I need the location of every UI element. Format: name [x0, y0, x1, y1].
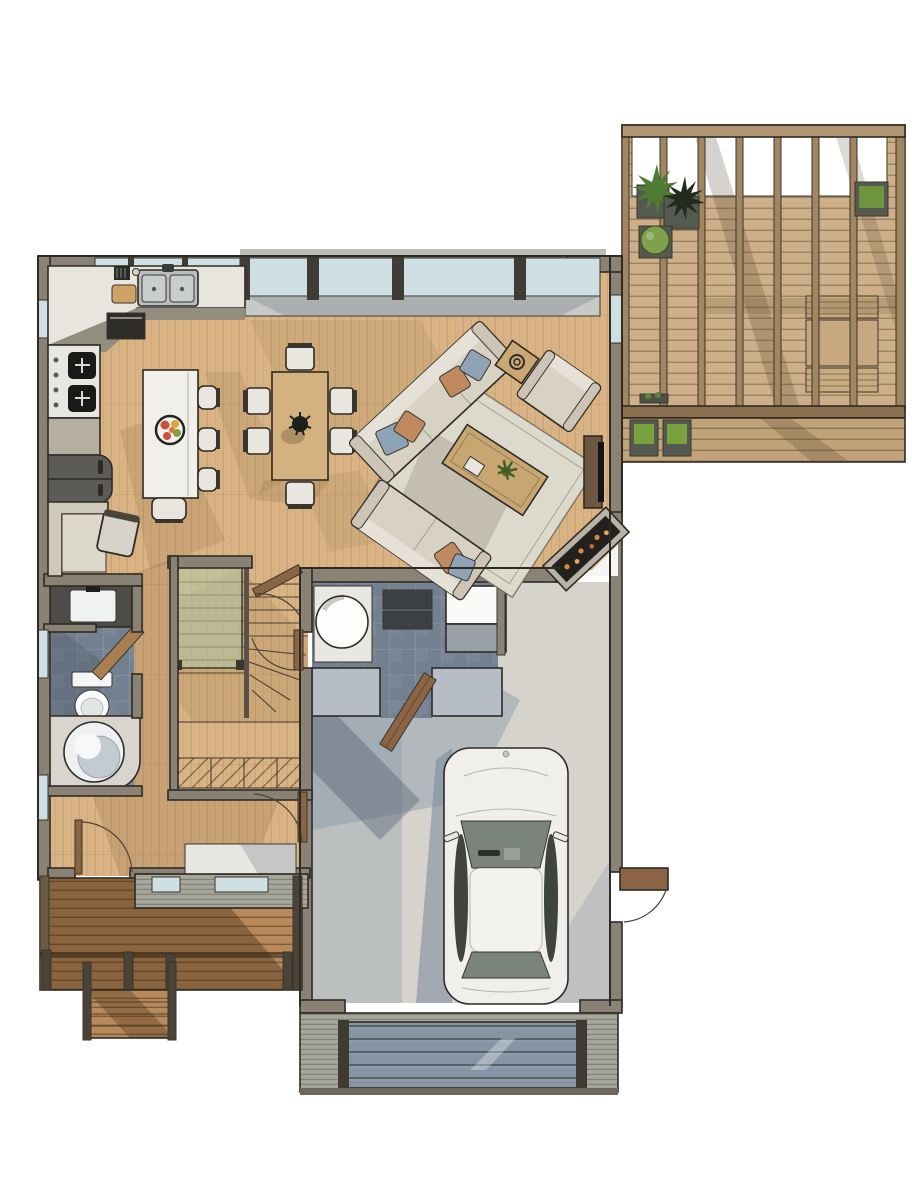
window-post	[392, 256, 404, 300]
powder-bottom-wall	[44, 786, 142, 796]
tv	[598, 442, 604, 502]
grass-plant	[667, 424, 687, 444]
dining-chair	[330, 388, 357, 414]
dashboard	[504, 848, 520, 860]
garage-front-wall	[580, 1000, 622, 1013]
facade-base	[300, 1088, 618, 1095]
laundry-unit	[383, 611, 432, 629]
water-heater	[316, 596, 368, 648]
staircase	[174, 557, 308, 790]
sill-shadow	[245, 296, 600, 316]
rail-post	[236, 660, 244, 670]
closet-floor	[178, 722, 308, 758]
fruit-platter	[156, 416, 184, 444]
front-window	[215, 877, 268, 892]
bar-stool	[198, 428, 217, 451]
rear-window	[462, 952, 550, 978]
understair-hatch	[178, 758, 308, 788]
window-post	[307, 256, 319, 300]
garage-facade	[300, 1013, 618, 1095]
faucet	[162, 264, 174, 272]
floor-plan-canvas	[0, 0, 912, 1181]
deck-slider-panel	[610, 295, 622, 343]
stair-divider	[244, 568, 249, 718]
car	[443, 748, 568, 1004]
railing-post	[124, 952, 133, 990]
planter-strip	[640, 394, 668, 403]
dining-chair	[286, 343, 314, 370]
side-window	[454, 834, 468, 962]
bar-stool	[198, 468, 217, 491]
toilet	[72, 672, 112, 722]
front-porch	[40, 874, 308, 1040]
great-room-window	[245, 258, 600, 296]
stair-bottom-wall	[168, 790, 312, 800]
entry-foyer	[185, 844, 296, 874]
door-post	[576, 1020, 587, 1092]
windshield	[461, 821, 551, 868]
partition-wall	[497, 582, 505, 655]
kitchen-sink	[138, 264, 198, 306]
half-wall	[432, 668, 502, 716]
powder-divider	[44, 624, 96, 632]
west-window	[38, 775, 48, 820]
railing-post	[42, 950, 51, 990]
dining-chair	[286, 482, 314, 509]
pergola-header	[622, 125, 905, 137]
powder-right-wall	[132, 674, 142, 718]
deck-pergola	[622, 125, 905, 462]
vanity-sink	[70, 590, 116, 622]
garage-front-wall	[300, 1000, 345, 1013]
garage-door	[345, 1022, 580, 1088]
half-wall	[312, 668, 380, 716]
glass-guardrail	[176, 560, 242, 668]
knife-block	[114, 266, 130, 280]
floor-plan	[0, 0, 912, 1181]
step-rail	[168, 962, 176, 1040]
powder-right-wall	[132, 586, 142, 632]
dining-chair	[243, 388, 270, 414]
roof	[470, 868, 542, 952]
nook-chair	[96, 509, 140, 558]
rail-shadow	[700, 298, 905, 314]
laundry-unit	[383, 590, 432, 609]
soaking-tub	[48, 716, 140, 790]
grass-plant	[634, 424, 654, 444]
bar-stool	[152, 498, 186, 520]
west-window	[38, 630, 48, 678]
powder-room	[48, 584, 144, 790]
jar	[133, 269, 140, 276]
dining-chair	[243, 428, 270, 454]
dashboard	[478, 850, 500, 856]
west-window	[38, 300, 48, 338]
round-bush	[641, 226, 669, 254]
deck-fascia	[622, 406, 905, 418]
moss-plant	[859, 186, 884, 208]
garage-side-door	[620, 868, 668, 922]
stair-wall	[168, 556, 252, 568]
step-rail	[83, 962, 91, 1040]
hall-garage-wall	[300, 568, 312, 632]
railing-post	[283, 952, 292, 990]
window-post	[514, 256, 526, 300]
base-cabinet	[48, 418, 100, 455]
front-window	[152, 877, 180, 892]
bar-stool	[198, 386, 217, 409]
refrigerator	[48, 455, 112, 503]
door-post	[338, 1020, 349, 1092]
garage	[312, 582, 610, 1004]
stair-side-wall	[170, 556, 178, 796]
cutting-board	[112, 285, 136, 303]
side-window	[544, 834, 558, 962]
east-wall-lower	[610, 922, 622, 1006]
wall-oven	[107, 313, 145, 339]
